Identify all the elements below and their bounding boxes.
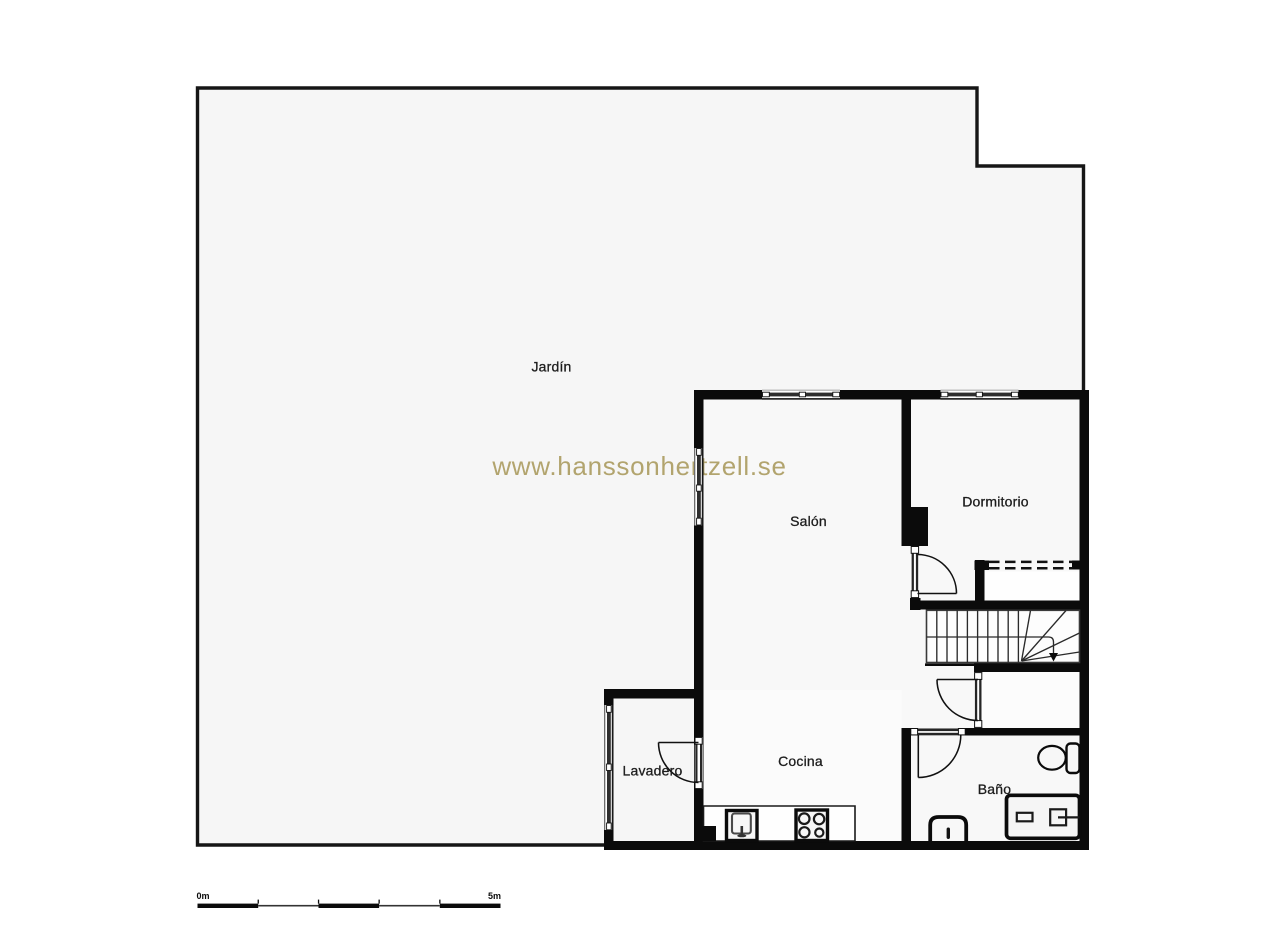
svg-text:Lavadero: Lavadero xyxy=(623,763,683,779)
svg-text:5m: 5m xyxy=(488,891,501,901)
svg-text:0m: 0m xyxy=(197,891,210,901)
svg-text:Jardín: Jardín xyxy=(531,359,571,375)
svg-text:www.hanssonhertzell.se: www.hanssonhertzell.se xyxy=(491,451,786,481)
svg-text:Dormitorio: Dormitorio xyxy=(962,494,1029,510)
svg-text:Baño: Baño xyxy=(978,781,1012,797)
svg-text:Cocina: Cocina xyxy=(778,753,823,769)
svg-text:Salón: Salón xyxy=(790,513,827,529)
